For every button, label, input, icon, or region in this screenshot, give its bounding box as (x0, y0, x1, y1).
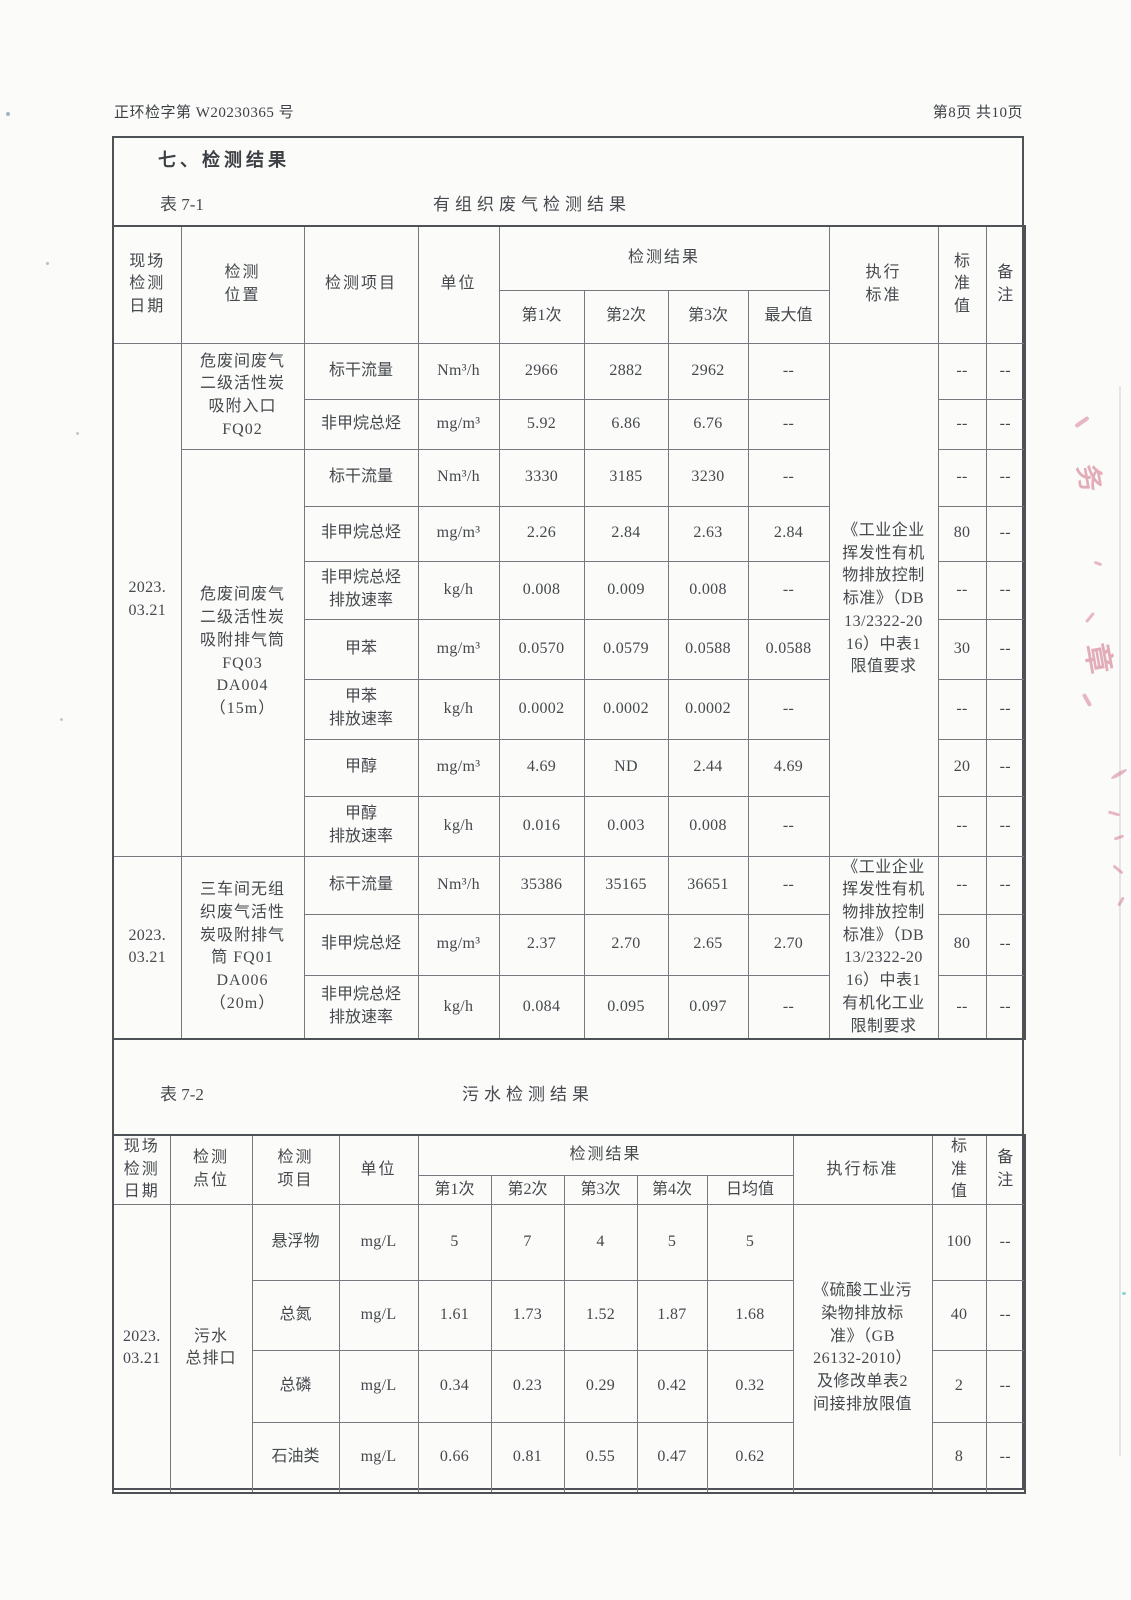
t1-value-cell: 3230 (668, 449, 748, 506)
t1-item-cell: 非甲烷总烃 (304, 506, 418, 561)
t1-note-cell: -- (986, 619, 1025, 679)
t2-note-cell: -- (986, 1281, 1025, 1351)
t1-limit-cell: -- (938, 399, 986, 449)
t2-limit-cell: 40 (932, 1281, 986, 1351)
t1-max-cell: 2.84 (748, 506, 829, 561)
t1-note-cell: -- (986, 856, 1025, 914)
t2-value-cell: 0.29 (564, 1351, 637, 1423)
t1-note-cell: -- (986, 506, 1025, 561)
t1-date-cell: 2023. 03.21 (113, 856, 181, 1039)
t1-limit-cell: -- (938, 796, 986, 856)
t2-head-run3: 第3次 (564, 1176, 637, 1205)
t2-note-cell: -- (986, 1351, 1025, 1423)
t2-note-cell: -- (986, 1205, 1025, 1281)
scan-speck (1122, 1292, 1126, 1295)
t1-item-cell: 标干流量 (304, 449, 418, 506)
t2-value-cell: 1.61 (418, 1281, 491, 1351)
t1-value-cell: 0.0570 (499, 619, 584, 679)
t1-head-date: 现场 检测 日期 (113, 226, 181, 343)
t1-location-cell: 三车间无组 织废气活性 炭吸附排气 筒 FQ01 DA006 （20m） (181, 856, 304, 1039)
t2-value-cell: 0.55 (564, 1423, 637, 1493)
t1-item-cell: 甲苯 排放速率 (304, 679, 418, 739)
wastewater-table: 现场 检测 日期 检测 点位 检测 项目 单位 检测结果 执行标准 标 准 值 … (112, 1134, 1026, 1494)
t1-value-cell: 0.097 (668, 975, 748, 1039)
t1-item-cell: 非甲烷总烃 排放速率 (304, 561, 418, 619)
red-stamp-fragment (1082, 693, 1092, 707)
t1-value-cell: 4.69 (499, 739, 584, 796)
t1-head-run1: 第1次 (499, 290, 584, 343)
t1-note-cell: -- (986, 399, 1025, 449)
t2-value-cell: 7 (491, 1205, 564, 1281)
t1-head-standard: 执行 标准 (829, 226, 938, 343)
t2-head-result: 检测结果 (418, 1135, 793, 1176)
t1-max-cell: -- (748, 856, 829, 914)
t1-standard-cell: 《工业企业 挥发性有机 物排放控制 标准》（DB 13/2322-20 16）中… (829, 343, 938, 856)
t1-value-cell: 0.0002 (668, 679, 748, 739)
red-stamp-fragment: 务 (1070, 461, 1113, 494)
t1-limit-cell: -- (938, 449, 986, 506)
t1-value-cell: 3185 (584, 449, 668, 506)
t1-max-cell: -- (748, 399, 829, 449)
t1-item-cell: 甲苯 (304, 619, 418, 679)
red-stamp-fragment: 章 (1077, 639, 1126, 676)
t2-head-limit: 标 准 值 (932, 1135, 986, 1205)
scan-speck (60, 718, 63, 721)
t1-max-cell: 4.69 (748, 739, 829, 796)
t2-value-cell: 5 (637, 1205, 707, 1281)
t1-value-cell: 6.86 (584, 399, 668, 449)
t2-item-cell: 石油类 (252, 1423, 339, 1493)
t1-item-cell: 非甲烷总烃 排放速率 (304, 975, 418, 1039)
t1-standard-cell: 《工业企业 挥发性有机 物排放控制 标准》（DB 13/2322-20 16）中… (829, 856, 938, 1039)
t1-unit-cell: Nm³/h (418, 449, 499, 506)
t1-item-cell: 甲醇 (304, 739, 418, 796)
t1-head-result: 检测结果 (499, 226, 829, 290)
t1-limit-cell: 80 (938, 914, 986, 975)
t1-value-cell: 0.0002 (584, 679, 668, 739)
t1-item-cell: 标干流量 (304, 856, 418, 914)
t2-unit-cell: mg/L (339, 1281, 418, 1351)
t1-item-cell: 非甲烷总烃 (304, 399, 418, 449)
t1-max-cell: -- (748, 343, 829, 399)
t1-value-cell: 2.26 (499, 506, 584, 561)
t1-value-cell: 2962 (668, 343, 748, 399)
t1-head-run2: 第2次 (584, 290, 668, 343)
t2-head-unit: 单位 (339, 1135, 418, 1205)
t1-unit-cell: mg/m³ (418, 739, 499, 796)
t1-unit-cell: Nm³/h (418, 856, 499, 914)
t1-unit-cell: Nm³/h (418, 343, 499, 399)
scanned-report-page: 正环检字第 W20230365 号 第8页 共10页 七、检测结果 表 7-1 … (0, 0, 1131, 1600)
t1-max-cell: -- (748, 796, 829, 856)
t2-avg-cell: 0.62 (707, 1423, 793, 1493)
t1-limit-cell: 20 (938, 739, 986, 796)
red-stamp-fragment (1094, 561, 1103, 567)
table2-caption-label: 表 7-2 (160, 1080, 204, 1105)
t1-value-cell: 35386 (499, 856, 584, 914)
table1-caption-title: 有组织废气检测结果 (433, 190, 631, 215)
t1-value-cell: 6.76 (668, 399, 748, 449)
t1-head-max: 最大值 (748, 290, 829, 343)
t2-unit-cell: mg/L (339, 1423, 418, 1493)
t1-unit-cell: kg/h (418, 679, 499, 739)
t2-value-cell: 0.66 (418, 1423, 491, 1493)
t2-item-cell: 总磷 (252, 1351, 339, 1423)
red-stamp-fragment (1085, 612, 1095, 623)
t2-item-cell: 悬浮物 (252, 1205, 339, 1281)
t1-value-cell: 0.0588 (668, 619, 748, 679)
t1-head-run3: 第3次 (668, 290, 748, 343)
t2-head-run2: 第2次 (491, 1176, 564, 1205)
t2-head-avg: 日均值 (707, 1176, 793, 1205)
t1-max-cell: -- (748, 449, 829, 506)
t1-value-cell: 2.84 (584, 506, 668, 561)
table1-caption-label: 表 7-1 (160, 190, 204, 215)
t2-avg-cell: 0.32 (707, 1351, 793, 1423)
t1-value-cell: 0.008 (668, 561, 748, 619)
t1-value-cell: 0.084 (499, 975, 584, 1039)
t2-value-cell: 0.81 (491, 1423, 564, 1493)
t1-value-cell: 0.0579 (584, 619, 668, 679)
t1-item-cell: 甲醇 排放速率 (304, 796, 418, 856)
t1-limit-cell: -- (938, 975, 986, 1039)
t2-date-cell: 2023. 03.21 (113, 1205, 170, 1493)
page-indicator: 第8页 共10页 (933, 101, 1023, 122)
t1-item-cell: 非甲烷总烃 (304, 914, 418, 975)
t2-value-cell: 0.47 (637, 1423, 707, 1493)
t2-head-location: 检测 点位 (170, 1135, 252, 1205)
t1-value-cell: 2966 (499, 343, 584, 399)
t1-date-cell: 2023. 03.21 (113, 343, 181, 856)
t1-note-cell: -- (986, 343, 1025, 399)
t1-value-cell: 35165 (584, 856, 668, 914)
t1-note-cell: -- (986, 796, 1025, 856)
t1-unit-cell: mg/m³ (418, 619, 499, 679)
t1-limit-cell: -- (938, 856, 986, 914)
t2-head-run1: 第1次 (418, 1176, 491, 1205)
t1-head-location: 检测 位置 (181, 226, 304, 343)
t2-unit-cell: mg/L (339, 1351, 418, 1423)
t1-head-item: 检测项目 (304, 226, 418, 343)
t1-value-cell: 0.095 (584, 975, 668, 1039)
t2-unit-cell: mg/L (339, 1205, 418, 1281)
t1-value-cell: 3330 (499, 449, 584, 506)
t1-value-cell: 2.65 (668, 914, 748, 975)
paper-edge-shadow (1119, 386, 1121, 1456)
doc-number: 正环检字第 W20230365 号 (114, 101, 294, 122)
t1-value-cell: 36651 (668, 856, 748, 914)
t1-value-cell: 2.63 (668, 506, 748, 561)
t2-value-cell: 1.87 (637, 1281, 707, 1351)
t1-note-cell: -- (986, 449, 1025, 506)
t1-unit-cell: mg/m³ (418, 506, 499, 561)
t1-unit-cell: kg/h (418, 975, 499, 1039)
t1-note-cell: -- (986, 739, 1025, 796)
t2-note-cell: -- (986, 1423, 1025, 1493)
t1-limit-cell: -- (938, 679, 986, 739)
t2-value-cell: 0.34 (418, 1351, 491, 1423)
t1-head-unit: 单位 (418, 226, 499, 343)
organized-exhaust-table: 现场 检测 日期 检测 位置 检测项目 单位 检测结果 执行 标准 标 准 值 … (112, 225, 1026, 1040)
t1-value-cell: 2.37 (499, 914, 584, 975)
t1-value-cell: 0.003 (584, 796, 668, 856)
t1-value-cell: 0.016 (499, 796, 584, 856)
t1-value-cell: 5.92 (499, 399, 584, 449)
t2-avg-cell: 1.68 (707, 1281, 793, 1351)
t1-value-cell: 0.008 (668, 796, 748, 856)
t2-head-date: 现场 检测 日期 (113, 1135, 170, 1205)
scan-speck (76, 432, 79, 435)
t1-head-limit: 标 准 值 (938, 226, 986, 343)
t1-value-cell: 0.008 (499, 561, 584, 619)
red-stamp-fragment (1074, 416, 1089, 428)
t1-max-cell: 0.0588 (748, 619, 829, 679)
t2-head-item: 检测 项目 (252, 1135, 339, 1205)
t2-value-cell: 1.73 (491, 1281, 564, 1351)
t1-value-cell: 0.0002 (499, 679, 584, 739)
t2-head-standard: 执行标准 (793, 1135, 932, 1205)
t1-item-cell: 标干流量 (304, 343, 418, 399)
t1-value-cell: 2.70 (584, 914, 668, 975)
t2-head-note: 备 注 (986, 1135, 1025, 1205)
t2-value-cell: 5 (418, 1205, 491, 1281)
t2-limit-cell: 2 (932, 1351, 986, 1423)
scan-speck (46, 262, 49, 265)
t1-limit-cell: 30 (938, 619, 986, 679)
t1-value-cell: ND (584, 739, 668, 796)
table2-caption-title: 污水检测结果 (462, 1080, 594, 1105)
t2-value-cell: 1.52 (564, 1281, 637, 1351)
t1-value-cell: 2882 (584, 343, 668, 399)
t2-standard-cell: 《硫酸工业污 染物排放标 准》（GB 26132-2010） 及修改单表2 间接… (793, 1205, 932, 1493)
t1-location-cell: 危废间废气 二级活性炭 吸附排气筒 FQ03 DA004 （15m） (181, 449, 304, 856)
t1-unit-cell: kg/h (418, 561, 499, 619)
t1-note-cell: -- (986, 561, 1025, 619)
scan-speck (6, 112, 10, 116)
t2-head-run4: 第4次 (637, 1176, 707, 1205)
t1-note-cell: -- (986, 679, 1025, 739)
t1-value-cell: 0.009 (584, 561, 668, 619)
t1-unit-cell: mg/m³ (418, 399, 499, 449)
t1-unit-cell: mg/m³ (418, 914, 499, 975)
t1-note-cell: -- (986, 914, 1025, 975)
t1-limit-cell: -- (938, 561, 986, 619)
t1-max-cell: -- (748, 679, 829, 739)
t1-value-cell: 2.44 (668, 739, 748, 796)
section-title: 七、检测结果 (158, 146, 290, 172)
t2-location-cell: 污水 总排口 (170, 1205, 252, 1493)
t2-limit-cell: 8 (932, 1423, 986, 1493)
t1-limit-cell: 80 (938, 506, 986, 561)
t2-limit-cell: 100 (932, 1205, 986, 1281)
t1-head-note: 备 注 (986, 226, 1025, 343)
t1-limit-cell: -- (938, 343, 986, 399)
t2-value-cell: 0.23 (491, 1351, 564, 1423)
t1-location-cell: 危废间废气 二级活性炭 吸附入口 FQ02 (181, 343, 304, 449)
t1-max-cell: -- (748, 975, 829, 1039)
t2-value-cell: 0.42 (637, 1351, 707, 1423)
t1-max-cell: -- (748, 561, 829, 619)
t1-note-cell: -- (986, 975, 1025, 1039)
t2-avg-cell: 5 (707, 1205, 793, 1281)
t2-value-cell: 4 (564, 1205, 637, 1281)
red-stamp-fragment (1112, 864, 1123, 874)
t2-item-cell: 总氮 (252, 1281, 339, 1351)
t1-unit-cell: kg/h (418, 796, 499, 856)
t1-max-cell: 2.70 (748, 914, 829, 975)
